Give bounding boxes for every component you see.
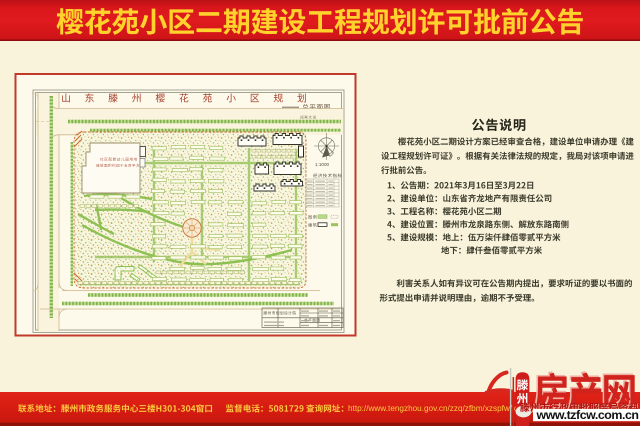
svg-text:1:1000: 1:1000 [315,162,329,167]
svg-text:www.tzfcw.com.cn: www.tzfcw.com.cn [536,408,639,422]
svg-text:http://www.tengzhou.gov.cn/zzq: http://www.tengzhou.gov.cn/zzq/zfbm/xzsp… [348,404,541,413]
